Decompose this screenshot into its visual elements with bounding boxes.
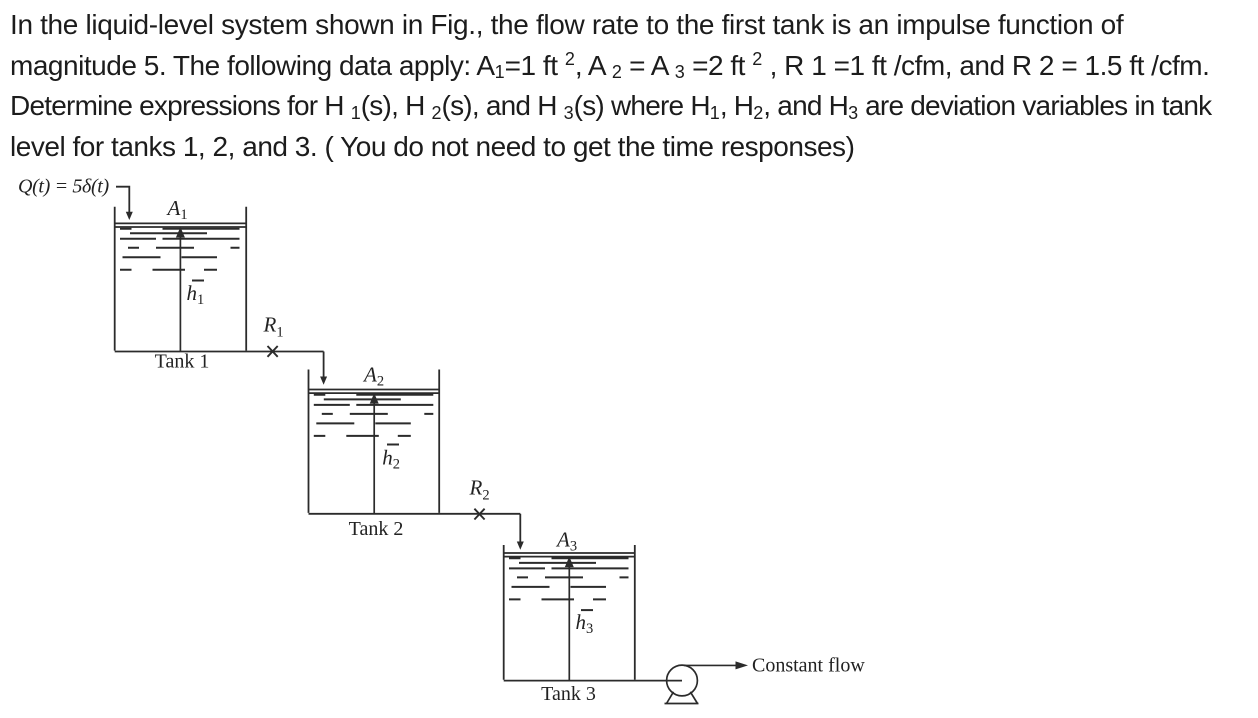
svg-text:h3: h3 (576, 610, 594, 637)
svg-text:R1: R1 (263, 313, 284, 341)
svg-text:Q(t) = 5δ(t): Q(t) = 5δ(t) (18, 176, 109, 198)
svg-text:h1: h1 (187, 281, 205, 308)
svg-text:Tank 3: Tank 3 (541, 683, 596, 705)
svg-text:Tank 2: Tank 2 (349, 518, 404, 540)
svg-text:Constant flow: Constant flow (752, 655, 865, 677)
svg-text:A3: A3 (555, 528, 577, 555)
svg-text:h2: h2 (382, 446, 400, 473)
svg-text:Tank 1: Tank 1 (155, 351, 210, 373)
svg-text:R2: R2 (469, 476, 490, 504)
svg-text:A2: A2 (362, 363, 384, 390)
svg-text:A1: A1 (166, 196, 188, 223)
